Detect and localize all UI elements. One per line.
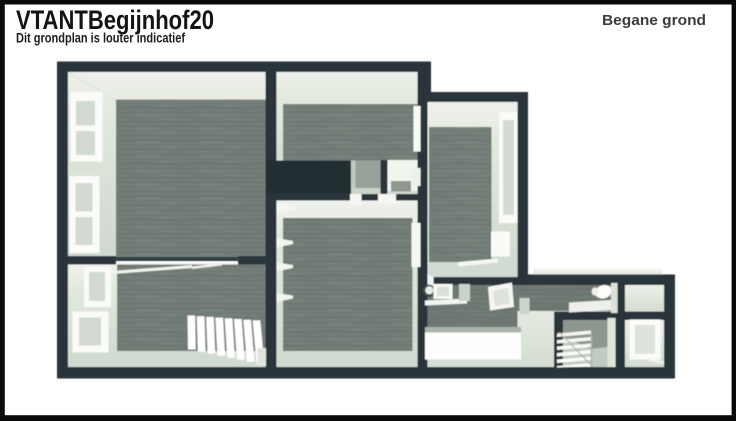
svg-text:Begane grond: Begane grond (602, 13, 706, 29)
svg-text:Dit grondplan is louter indica: Dit grondplan is louter indicatief (16, 30, 185, 46)
